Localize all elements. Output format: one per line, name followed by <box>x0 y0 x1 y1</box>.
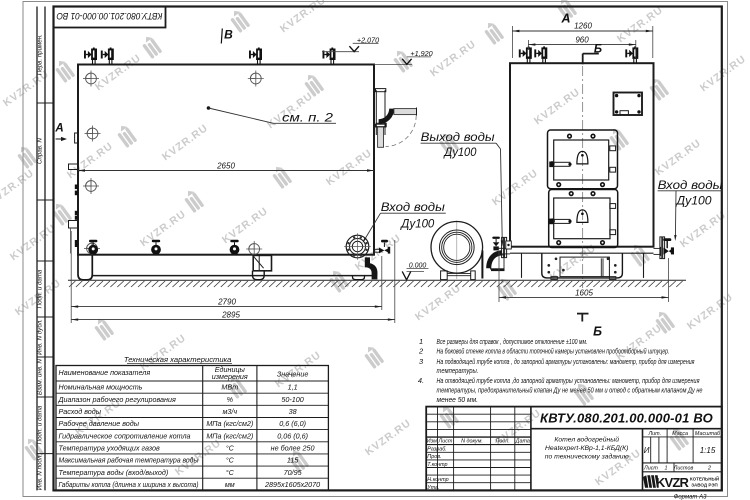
svg-text:Вход воды: Вход воды <box>658 178 723 192</box>
svg-text:1260: 1260 <box>574 22 592 31</box>
svg-text:KVZR.RU: KVZR.RU <box>220 205 270 246</box>
svg-text:Лист: Лист <box>438 438 453 444</box>
svg-text:2895: 2895 <box>221 310 240 319</box>
svg-text:KVZR: KVZR <box>656 475 690 490</box>
svg-text:KVZR.RU: KVZR.RU <box>413 282 463 323</box>
svg-text:Подп.: Подп. <box>496 438 510 444</box>
svg-text:KVZR.RU: KVZR.RU <box>138 208 188 249</box>
svg-text:не более 250: не более 250 <box>271 444 315 453</box>
svg-text:%: % <box>227 395 234 404</box>
svg-text:Техническая характеристика: Техническая характеристика <box>124 355 232 364</box>
svg-text:1605: 1605 <box>575 288 593 297</box>
svg-text:Лист: Лист <box>643 466 658 472</box>
svg-text:Наименование показателя: Наименование показателя <box>59 368 151 377</box>
svg-text:КВТУ.080.201.00.000-01 ВО: КВТУ.080.201.00.000-01 ВО <box>540 411 713 426</box>
svg-text:1,1: 1,1 <box>288 383 298 392</box>
svg-text:°С: °С <box>226 468 235 477</box>
svg-text:КВТУ.080.201.00.000-01 ВО: КВТУ.080.201.00.000-01 ВО <box>56 11 163 22</box>
svg-text:KVZR.RU: KVZR.RU <box>698 53 748 94</box>
svg-text:KVZR.RU: KVZR.RU <box>490 167 540 208</box>
svg-text:°С: °С <box>226 456 235 465</box>
svg-text:960: 960 <box>575 35 589 44</box>
svg-text:2: 2 <box>418 347 423 356</box>
svg-text:KVZR.RU: KVZR.RU <box>615 4 665 45</box>
svg-text:по техническому заданию: по техническому заданию <box>545 453 629 461</box>
svg-text:Утв.: Утв. <box>426 485 439 491</box>
svg-text:70/95: 70/95 <box>284 468 303 477</box>
svg-text:Котел водогрейный: Котел водогрейный <box>554 436 619 444</box>
svg-text:МПа (кгс/см2): МПа (кгс/см2) <box>206 419 253 428</box>
svg-text:мм: мм <box>225 480 235 489</box>
svg-text:МВт: МВт <box>221 383 238 392</box>
svg-text:Рабочее давление воды: Рабочее давление воды <box>59 419 140 428</box>
svg-text:KVZR.RU: KVZR.RU <box>532 86 582 127</box>
svg-text:Ду100: Ду100 <box>399 217 434 231</box>
svg-text:Вход воды: Вход воды <box>381 200 445 214</box>
svg-text:KVZR.RU: KVZR.RU <box>428 38 478 79</box>
svg-text:Дата: Дата <box>515 438 530 444</box>
svg-text:Габариты котла (длинна х ширин: Габариты котла (длинна х ширина х высота… <box>59 480 199 489</box>
svg-text:Масштаб: Масштаб <box>695 431 721 437</box>
svg-text:Формат А3: Формат А3 <box>674 494 707 500</box>
svg-text:2790: 2790 <box>217 297 236 306</box>
svg-text:KVZR.RU: KVZR.RU <box>0 167 36 208</box>
svg-text:см. п. 2: см. п. 2 <box>282 110 333 124</box>
svg-text:Разраб.: Разраб. <box>427 447 447 453</box>
svg-text:KVZR.RU: KVZR.RU <box>324 147 374 188</box>
svg-text:0,6 (6,0): 0,6 (6,0) <box>279 419 306 428</box>
svg-text:KVZR.RU: KVZR.RU <box>160 122 210 163</box>
svg-text:°С: °С <box>226 444 235 453</box>
svg-text:Изм: Изм <box>427 438 437 444</box>
svg-text:1:15: 1:15 <box>700 446 716 455</box>
svg-text:38: 38 <box>289 407 297 416</box>
svg-text:Значение: Значение <box>277 369 309 378</box>
svg-text:Подп. и дата: Подп. и дата <box>37 405 44 444</box>
svg-text:температуры, предохранительный: температуры, предохранительный клапан Ду… <box>437 386 703 395</box>
svg-text:На подводящей трубе котла , д: На подводящей трубе котла , до запорной … <box>437 357 695 366</box>
svg-text:Heatexpert-КВр-1,1-КБД(К): Heatexpert-КВр-1,1-КБД(К) <box>545 445 628 452</box>
svg-text:Диапазон рабочего регулировани: Диапазон рабочего регулирования <box>58 395 177 404</box>
svg-text:1: 1 <box>665 466 668 472</box>
svg-text:N докум.: N докум. <box>461 438 483 444</box>
svg-text:м3/ч: м3/ч <box>222 407 237 416</box>
svg-text:Ду100: Ду100 <box>443 145 477 159</box>
svg-text:Лит.: Лит. <box>647 431 661 437</box>
svg-text:+1,920: +1,920 <box>410 49 432 58</box>
svg-text:температуры.: температуры. <box>437 366 479 375</box>
svg-text:Масса: Масса <box>672 431 688 437</box>
svg-text:В: В <box>224 28 233 42</box>
svg-text:115: 115 <box>287 456 299 465</box>
svg-text:KVZR.RU: KVZR.RU <box>65 140 115 181</box>
svg-text:И: И <box>644 446 650 455</box>
svg-text:измерения: измерения <box>212 372 248 381</box>
svg-text:На боковой стенке котла в обла: На боковой стенке котла в области топочн… <box>437 347 670 356</box>
svg-text:KVZR.RU: KVZR.RU <box>138 332 188 373</box>
svg-text:Листов: Листов <box>673 466 694 472</box>
svg-text:Инв. N дубл.: Инв. N дубл. <box>37 319 44 355</box>
svg-text:А: А <box>560 12 570 26</box>
svg-text:Т.контр: Т.контр <box>427 462 447 468</box>
svg-text:KVZR.RU: KVZR.RU <box>93 52 143 93</box>
svg-text:1: 1 <box>419 337 423 346</box>
svg-text:менее 50 мм.: менее 50 мм. <box>437 395 479 404</box>
svg-text:Подп. и дата: Подп. и дата <box>37 269 44 308</box>
svg-text:2895х1605х2070: 2895х1605х2070 <box>264 480 320 489</box>
svg-text:На отводящей трубе котла ,до з: На отводящей трубе котла ,до запорной ар… <box>437 376 700 385</box>
svg-text:Температура воды (вход/выход): Температура воды (вход/выход) <box>59 468 169 477</box>
svg-text:Н.контр: Н.контр <box>427 477 448 483</box>
svg-text:4.: 4. <box>418 376 424 385</box>
svg-text:KVZR.RU: KVZR.RU <box>363 417 413 458</box>
svg-text:Максимальная рабочая температу: Максимальная рабочая температура воды <box>59 456 200 465</box>
svg-text:МПа (кгс/см2): МПа (кгс/см2) <box>206 431 253 440</box>
svg-text:Температура уходящих газов: Температура уходящих газов <box>59 444 161 453</box>
svg-text:0,06 (0,6): 0,06 (0,6) <box>277 431 308 440</box>
svg-text:3: 3 <box>419 357 424 366</box>
svg-text:Расход воды: Расход воды <box>59 407 102 416</box>
svg-text:KVZR.RU: KVZR.RU <box>653 137 703 178</box>
svg-text:ЗАВОД РЭП: ЗАВОД РЭП <box>691 483 718 488</box>
svg-text:Перв. примен.: Перв. примен. <box>37 34 44 75</box>
svg-text:Справ. N: Справ. N <box>37 138 44 164</box>
svg-text:Все размеры для справок , допу: Все размеры для справок , допустимое отк… <box>437 337 588 346</box>
svg-text:Б: Б <box>593 325 602 339</box>
svg-text:2: 2 <box>707 466 711 472</box>
svg-text:А: А <box>54 123 63 135</box>
svg-text:Выход воды: Выход воды <box>421 130 495 144</box>
svg-text:Пров.: Пров. <box>427 454 441 460</box>
svg-text:Взам. инв. N: Взам. инв. N <box>37 358 44 395</box>
svg-text:KVZR.RU: KVZR.RU <box>8 222 58 263</box>
svg-text:KVZR.RU: KVZR.RU <box>278 0 328 35</box>
svg-text:Б: Б <box>594 44 602 56</box>
svg-text:КОТЕЛЬНЫЙ: КОТЕЛЬНЫЙ <box>690 475 719 482</box>
svg-text:Номинальная мощность: Номинальная мощность <box>59 383 143 392</box>
svg-text:Инв. N подл.: Инв. N подл. <box>37 454 44 490</box>
svg-text:Гидравлическое сопротивление к: Гидравлическое сопротивление котла <box>59 431 191 440</box>
svg-text:50-100: 50-100 <box>281 395 303 404</box>
svg-text:Ду100: Ду100 <box>674 193 711 207</box>
svg-text:+2,070: +2,070 <box>357 35 379 44</box>
svg-text:2650: 2650 <box>216 161 235 170</box>
